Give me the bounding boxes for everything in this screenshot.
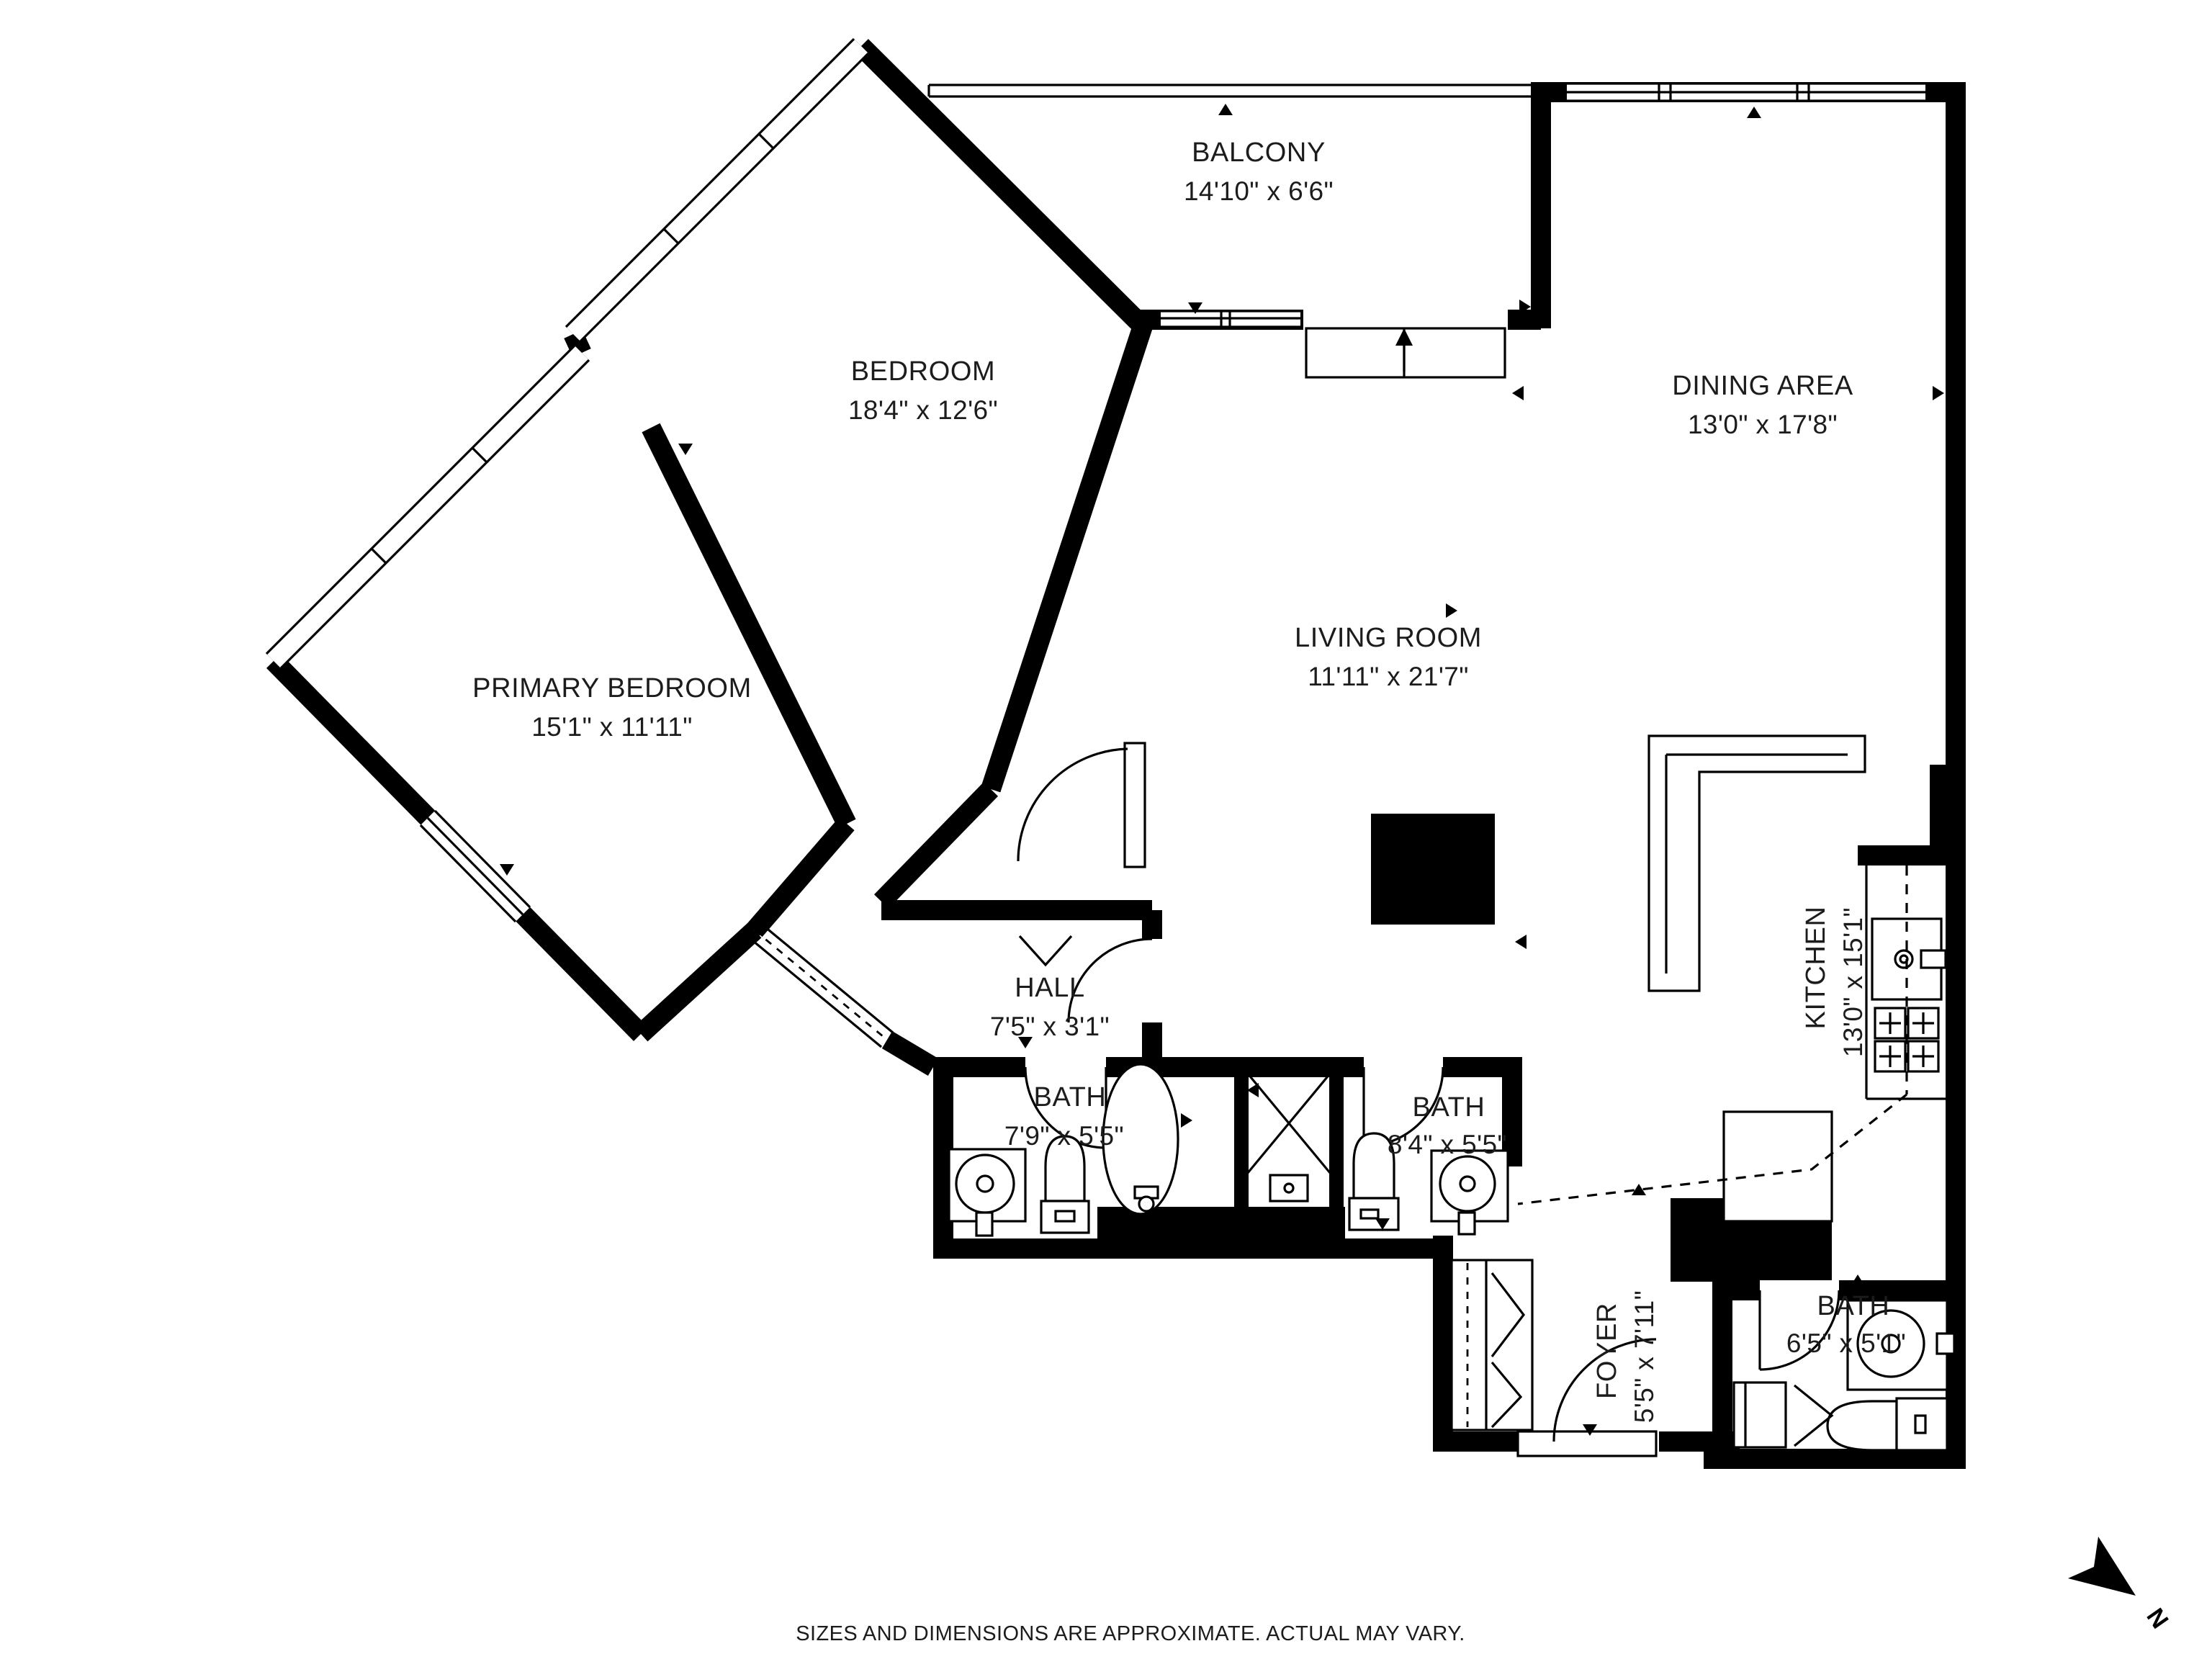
- room-label-balcony: BALCONY: [1192, 138, 1326, 168]
- room-label-living: LIVING ROOM: [1295, 623, 1482, 653]
- wall-closet-stub: [641, 930, 755, 1034]
- wall-bedroom-living: [991, 320, 1145, 789]
- room-dims-bath2: 8'4" x 5'5": [1388, 1130, 1507, 1159]
- room-dims-dining: 13'0" x 17'8": [1688, 410, 1838, 439]
- toilet-icon: [1827, 1401, 1897, 1450]
- wall-bedroom-primary: [651, 428, 847, 824]
- room-label-bedroom: BEDROOM: [851, 356, 996, 387]
- room-dims-balcony: 14'10" x 6'6": [1184, 176, 1334, 206]
- wall-notch: [1930, 765, 1956, 855]
- bath1-door-gap: [1025, 1057, 1106, 1077]
- room-dims-bedroom: 18'4" x 12'6": [848, 395, 998, 425]
- tick-left-icon: [1515, 935, 1527, 949]
- bedroom-door-leaf: [1125, 743, 1145, 867]
- room-dims-foyer: 5'5" x 7'11": [1629, 1290, 1659, 1423]
- wall-mass-bath1: [1097, 1207, 1345, 1259]
- room-dims-living: 11'11" x 21'7": [1308, 662, 1469, 691]
- foyer-closet: [1452, 1260, 1532, 1430]
- room-label-bath2: BATH: [1413, 1092, 1485, 1123]
- room-label-kitchen: KITCHEN: [1801, 907, 1831, 1030]
- bedroom-door-arc: [1018, 749, 1128, 861]
- kitchen-peninsula-counter: [1649, 736, 1865, 991]
- wall-bedroom-balcony: [861, 46, 1145, 328]
- tick-down-icon: [678, 444, 693, 455]
- room-label-hall: HALL: [1015, 973, 1084, 1003]
- bedroom-window: [566, 39, 868, 341]
- room-label-bath3: BATH: [1817, 1291, 1890, 1321]
- room-label-bath1: BATH: [1034, 1082, 1107, 1112]
- north-label: N: [2141, 1604, 2173, 1634]
- room-dims-kitchen: 13'0" x 15'1": [1838, 907, 1868, 1057]
- north-arrow-icon: [2068, 1537, 2136, 1596]
- tick-up-icon: [1218, 104, 1233, 115]
- closet-chevron-icon: [1794, 1385, 1832, 1446]
- kitchen-fixtures: [1518, 736, 1947, 1221]
- room-label-dining: DINING AREA: [1672, 371, 1853, 401]
- bath3-fixtures: [1734, 1300, 1954, 1450]
- column: [1371, 814, 1495, 925]
- hall-closet-chevron-icon: [1020, 936, 1071, 965]
- balcony-door-gap: [1303, 310, 1508, 330]
- shower-icon: [1247, 1073, 1331, 1174]
- floor-plan: BALCONY 14'10" x 6'6" BEDROOM 18'4" x 12…: [0, 0, 2212, 1659]
- primary-window: [266, 346, 589, 668]
- room-dims-hall: 7'5" x 3'1": [990, 1012, 1110, 1041]
- room-dims-bath3: 6'5" x 5'1": [1786, 1328, 1906, 1358]
- tick-right-icon: [1446, 603, 1457, 618]
- tick-left-icon: [1512, 386, 1524, 400]
- entry-door-leaf: [1518, 1431, 1656, 1456]
- tick-left-icon: [1247, 1083, 1259, 1097]
- compass: N: [2068, 1537, 2174, 1634]
- balcony-railing: [929, 85, 1531, 96]
- disclaimer-text: SIZES AND DIMENSIONS ARE APPROXIMATE. AC…: [796, 1622, 1465, 1645]
- wall-closet-hall: [887, 1040, 933, 1067]
- bath2-door-gap: [1364, 1057, 1443, 1077]
- cabinet-dashed-line: [1518, 1094, 1907, 1204]
- tick-down-icon: [500, 864, 514, 876]
- wall-closet-top: [755, 824, 847, 930]
- wall-bedroom-hall: [881, 789, 991, 902]
- room-label-primary: PRIMARY BEDROOM: [472, 673, 752, 703]
- room-label-foyer: FOYER: [1592, 1303, 1622, 1399]
- primary-closet-sliding-door: [749, 923, 893, 1047]
- tick-up-icon: [1747, 107, 1761, 118]
- tick-right-icon: [1181, 1113, 1192, 1128]
- room-dims-bath1: 7'9" x 5'5": [1004, 1121, 1124, 1151]
- room-dims-primary: 15'1" x 11'11": [531, 712, 693, 742]
- bath3-closet: [1734, 1382, 1786, 1447]
- tick-right-icon: [1933, 386, 1944, 400]
